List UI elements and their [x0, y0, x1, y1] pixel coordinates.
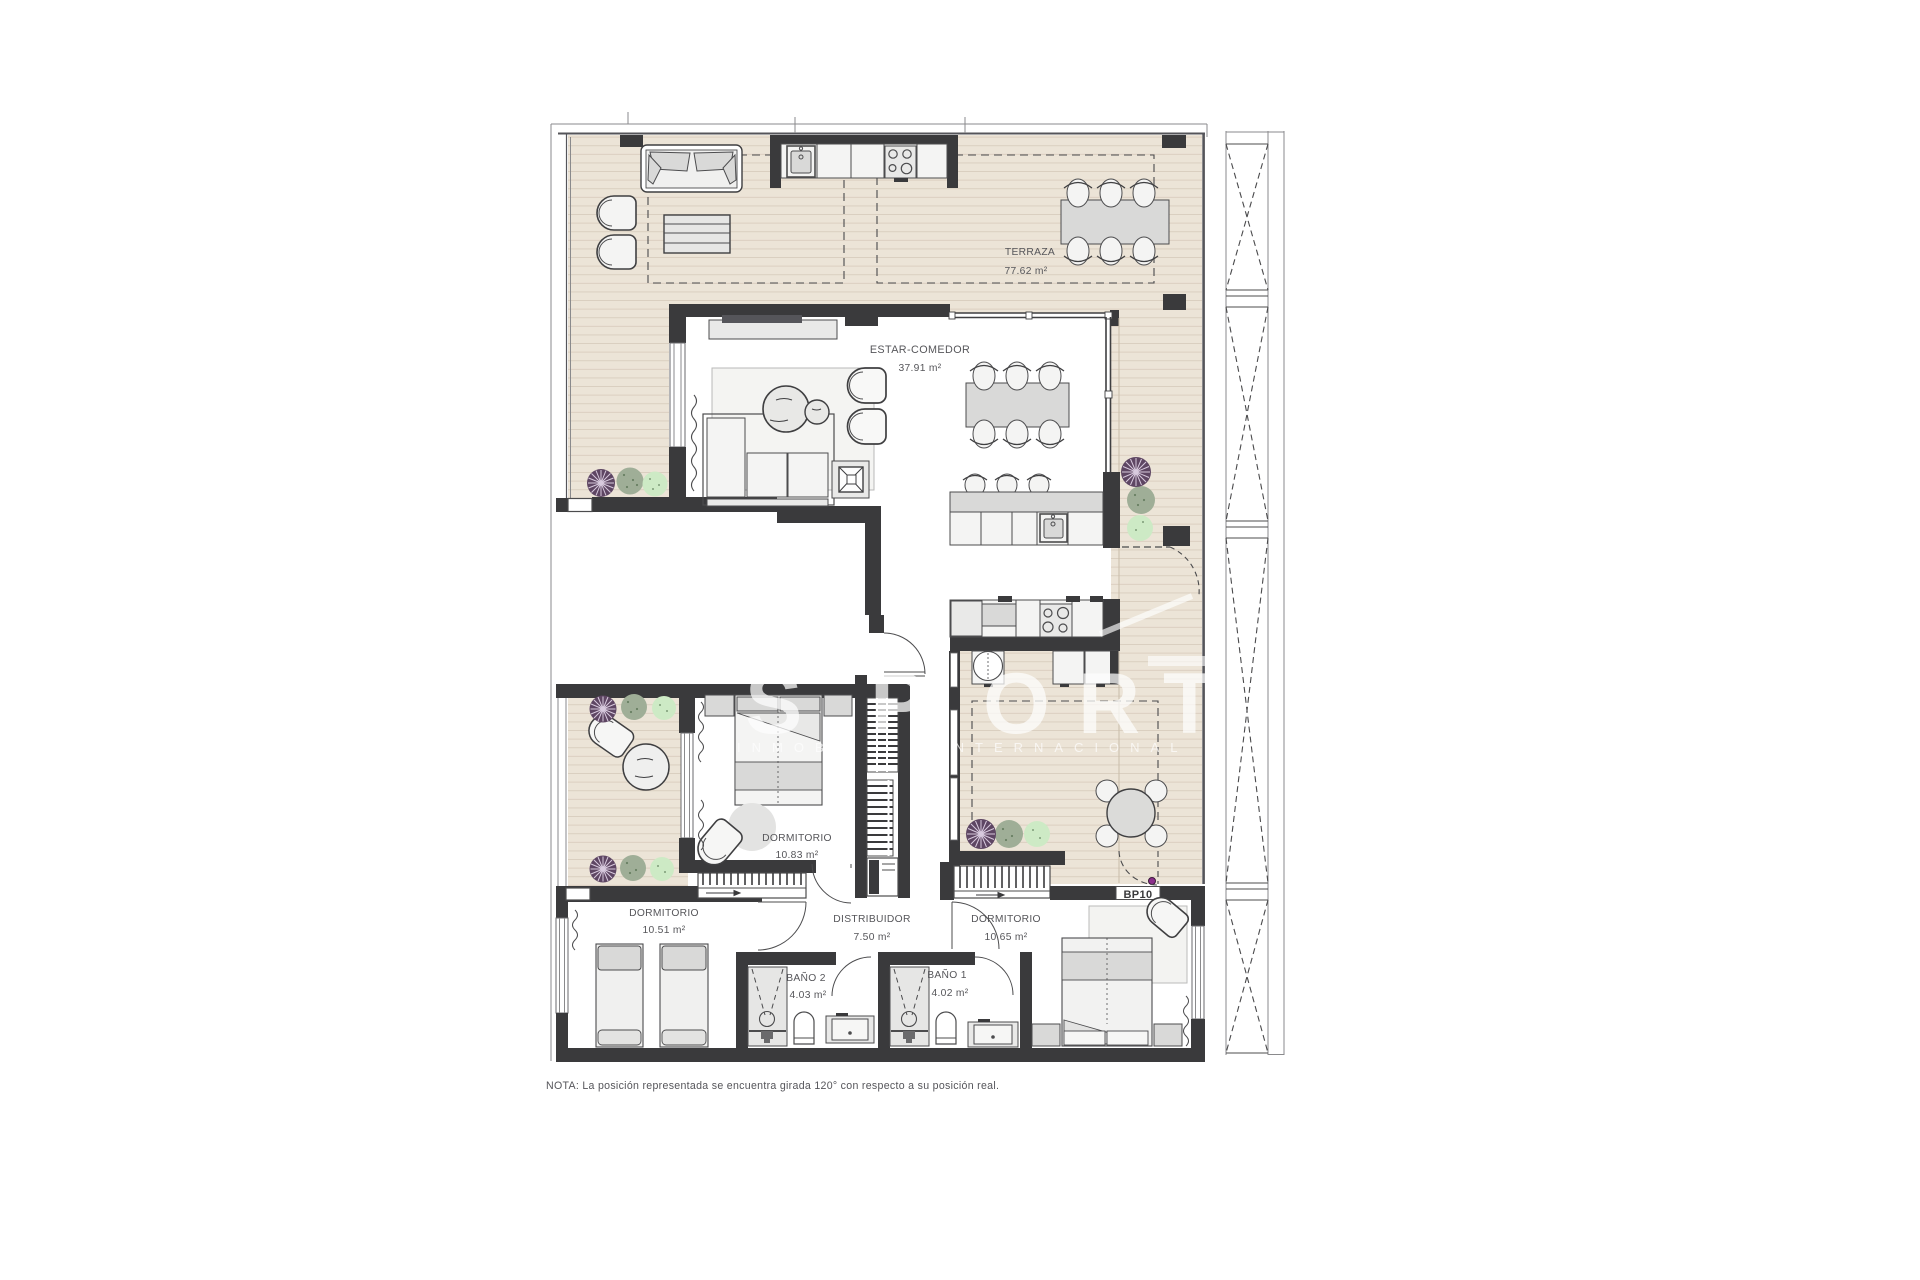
svg-text:10.65 m²: 10.65 m²	[984, 932, 1027, 943]
svg-text:4.03 m²: 4.03 m²	[789, 990, 826, 1001]
svg-text:10.51 m²: 10.51 m²	[642, 925, 685, 936]
svg-text:DORMITORIO: DORMITORIO	[629, 908, 699, 919]
svg-text:10.83 m²: 10.83 m²	[775, 850, 818, 861]
svg-text:DISTRIBUIDOR: DISTRIBUIDOR	[833, 914, 910, 925]
svg-text:ESTAR-COMEDOR: ESTAR-COMEDOR	[870, 344, 970, 356]
svg-text:NOTA: La posición representada: NOTA: La posición representada se encuen…	[546, 1080, 999, 1092]
svg-text:R: R	[1078, 656, 1144, 752]
svg-text:S: S	[745, 656, 806, 752]
svg-text:T: T	[1163, 656, 1220, 752]
svg-text:INTERNACIONAL: INTERNACIONAL	[940, 740, 1188, 755]
svg-text:4.02 m²: 4.02 m²	[931, 988, 968, 999]
svg-text:TERRAZA: TERRAZA	[1005, 247, 1055, 258]
svg-text:DORMITORIO: DORMITORIO	[971, 914, 1041, 925]
svg-text:37.91 m²: 37.91 m²	[898, 363, 941, 374]
svg-text:BP10: BP10	[1123, 889, 1152, 901]
svg-text:BAÑO 1: BAÑO 1	[927, 968, 967, 981]
svg-text:DORMITORIO: DORMITORIO	[762, 833, 832, 844]
svg-text:O: O	[983, 656, 1054, 752]
svg-text:77.62 m²: 77.62 m²	[1004, 266, 1047, 277]
svg-text:P: P	[870, 656, 931, 752]
svg-text:7.50 m²: 7.50 m²	[853, 932, 890, 943]
svg-text:BAÑO 2: BAÑO 2	[786, 971, 826, 984]
svg-text:INMOB: INMOB	[737, 740, 835, 755]
